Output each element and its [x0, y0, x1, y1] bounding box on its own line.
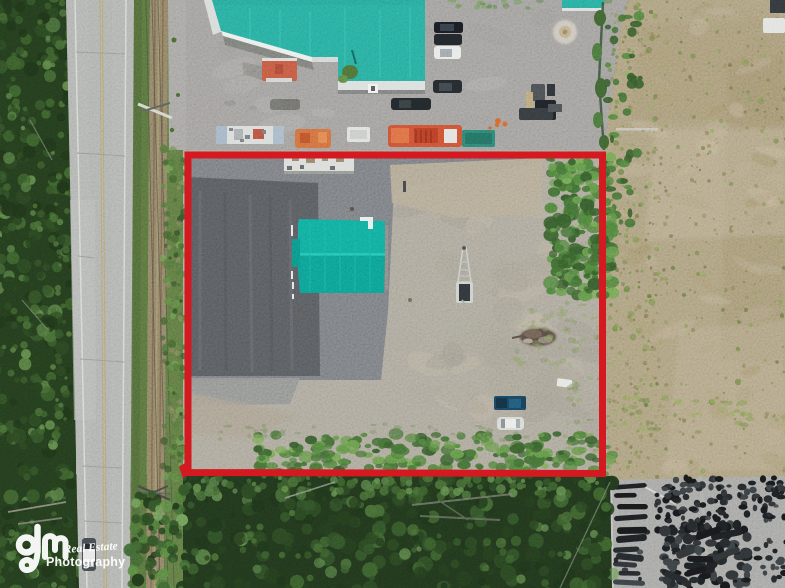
svg-text:Photography: Photography	[46, 555, 125, 569]
